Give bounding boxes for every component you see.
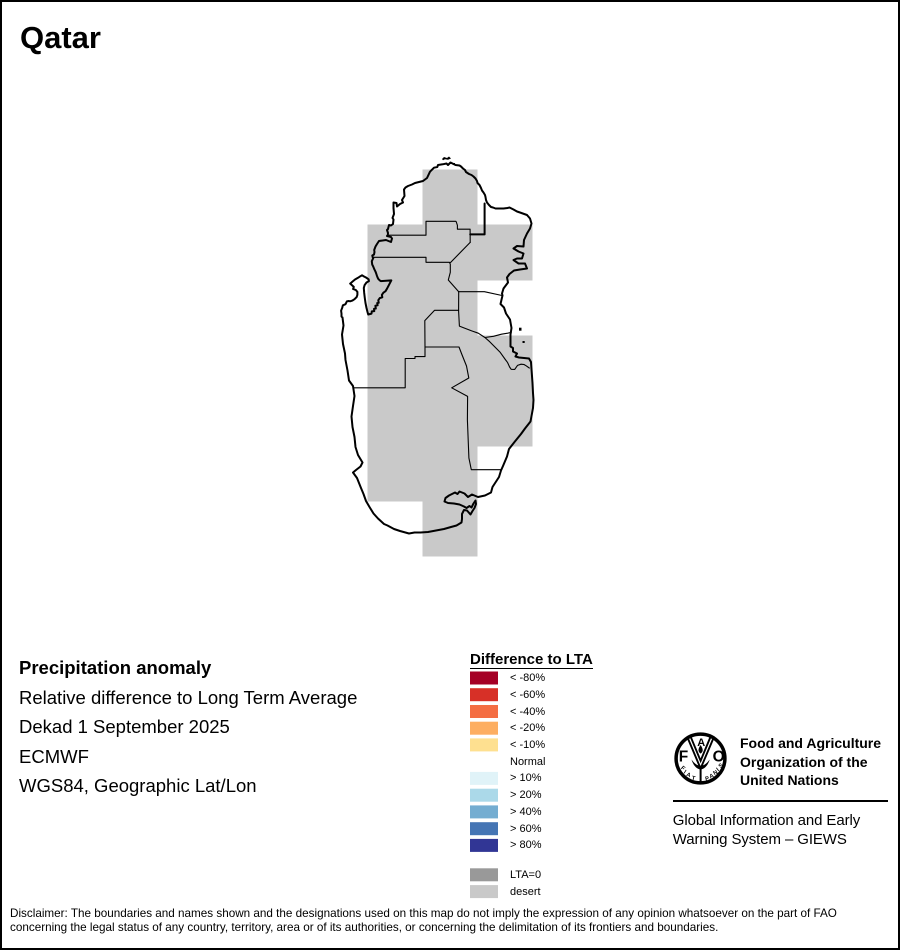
svg-text:F: F xyxy=(679,748,688,765)
svg-text:O: O xyxy=(713,749,725,766)
